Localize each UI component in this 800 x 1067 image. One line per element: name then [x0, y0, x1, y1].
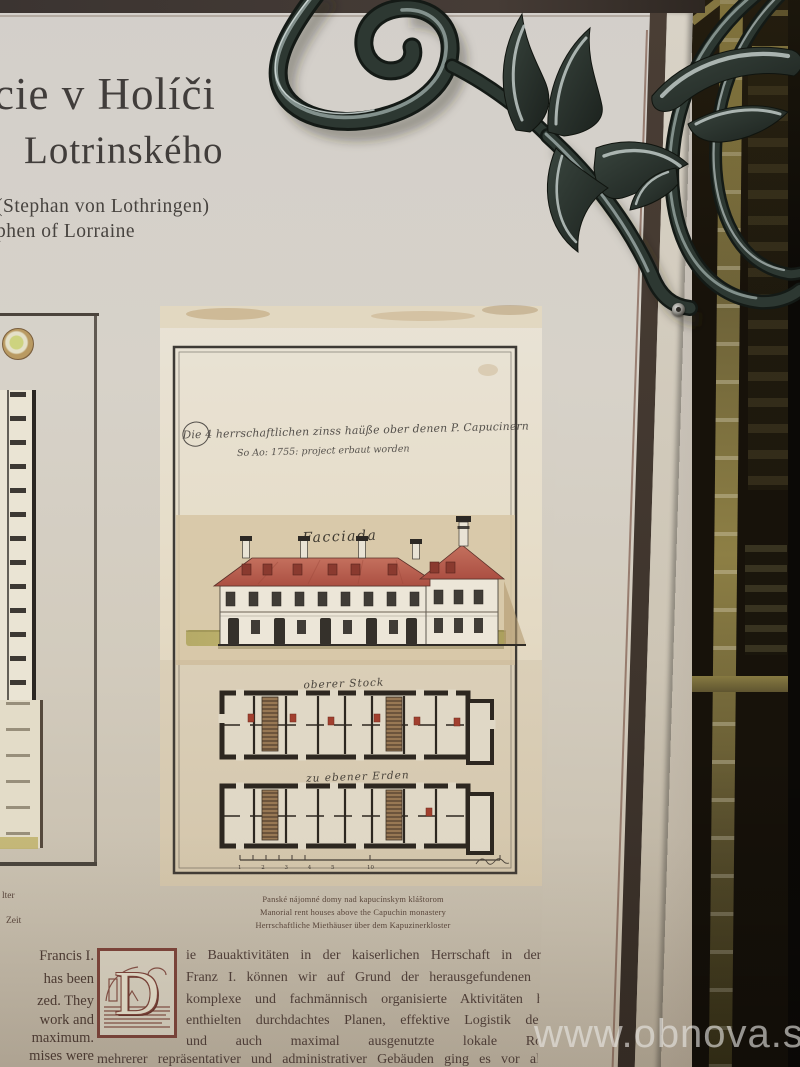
window-muntin-vertical	[709, 0, 743, 1067]
left-drawing-frame-bottom	[0, 862, 97, 866]
caption-german: Herrschaftliche Miethäuser über dem Kapu…	[160, 919, 546, 932]
photo-of-exhibit-panel: cie v Holíči Lotrinského (Stephan von Lo…	[0, 0, 800, 1067]
left-drawing-frame-right	[94, 313, 97, 866]
left-text-fragment: mises were	[0, 1048, 96, 1065]
panel-top-border-thin-line	[0, 15, 650, 17]
panel-title-line2: Lotrinského	[24, 128, 223, 173]
window-glass-reflection	[745, 545, 787, 655]
watermark-text: www.obnova.sk	[534, 1012, 800, 1057]
panel-top-border	[0, 0, 705, 13]
left-drawing-floorplan-strip	[0, 390, 36, 700]
window-dark-edge	[788, 0, 800, 1067]
panel-subtitle-english: phen of Lorraine	[0, 221, 135, 243]
left-text-fragment: zed. They	[0, 993, 96, 1010]
window-glass-reflection	[748, 60, 794, 490]
left-cropped-drawing	[0, 310, 106, 876]
left-text-fragment: has been	[0, 971, 96, 988]
caption-slovak: Panské nájomné domy nad kapucínskym kláš…	[160, 893, 546, 906]
left-drawing-ground-wash	[0, 837, 38, 849]
drop-cap-letter: D	[100, 951, 174, 1035]
left-drawing-frame-top	[0, 313, 99, 316]
window-frame-sill	[752, 46, 800, 56]
panel-title-line1: cie v Holíči	[0, 68, 216, 120]
left-caption-fragment: lter	[2, 891, 15, 901]
window-muntin-horizontal	[685, 676, 800, 692]
mounting-screw	[672, 303, 685, 316]
left-text-fragment: maximum.	[0, 1030, 96, 1047]
caption-english: Manorial rent houses above the Capuchin …	[160, 906, 546, 919]
left-drawing-circle-detail	[2, 328, 34, 360]
panel-subtitle-german: (Stephan von Lothringen)	[0, 196, 209, 218]
drawing-caption-block: Panské nájomné domy nad kapucínskym kláš…	[160, 893, 546, 933]
left-text-fragment: work and	[0, 1012, 96, 1029]
decorated-drop-cap: D	[97, 948, 177, 1038]
historic-architectural-drawing: Die 4 herrschaftlichen zinss haüße ober …	[158, 300, 546, 892]
paragraph-line: mehrerer repräsentativer und administrat…	[97, 1052, 589, 1067]
window-frame-shelf-line	[764, 10, 800, 16]
left-drawing-floorplan-strip-lower	[0, 700, 43, 848]
left-caption-fragment: Zeit	[6, 916, 21, 926]
drawing-sheet: Die 4 herrschaftlichen zinss haüße ober …	[158, 300, 546, 892]
left-text-fragment: Francis I.	[0, 948, 96, 965]
